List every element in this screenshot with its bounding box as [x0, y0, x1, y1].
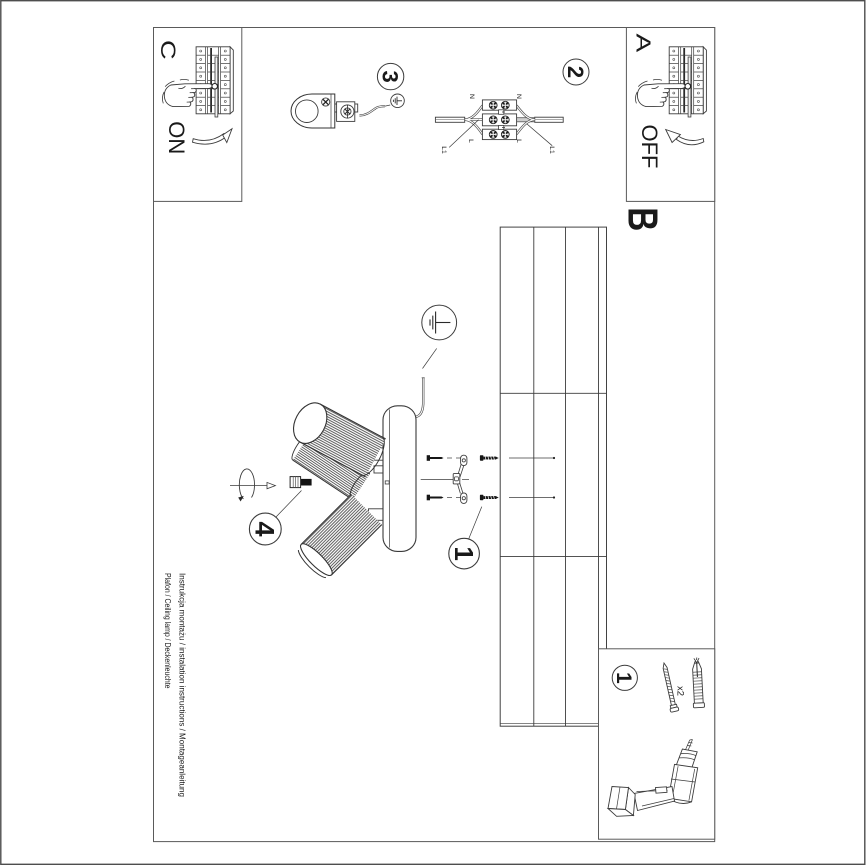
- svg-text:Plafon / Ceiling lamp / Decken: Plafon / Ceiling lamp / Deckenleuchte: [163, 573, 172, 689]
- svg-text:1: 1: [449, 546, 479, 560]
- svg-text:OFF: OFF: [637, 125, 662, 169]
- svg-text:B: B: [620, 207, 666, 231]
- svg-text:A: A: [632, 34, 654, 54]
- svg-text:3: 3: [378, 70, 403, 82]
- svg-text:N: N: [515, 94, 522, 99]
- svg-text:L1: L1: [440, 146, 447, 154]
- svg-text:1: 1: [612, 672, 635, 684]
- svg-text:L: L: [515, 139, 522, 143]
- svg-text:Instrukcja montażu / instalati: Instrukcja montażu / instalation instruc…: [177, 573, 186, 797]
- svg-text:C: C: [156, 40, 179, 60]
- svg-text:N: N: [468, 94, 475, 99]
- svg-text:L: L: [467, 139, 474, 143]
- svg-text:2: 2: [563, 66, 588, 78]
- svg-text:ON: ON: [164, 121, 189, 154]
- svg-text:4: 4: [250, 521, 280, 536]
- svg-text:L1: L1: [548, 146, 555, 154]
- svg-text:x2: x2: [675, 686, 686, 696]
